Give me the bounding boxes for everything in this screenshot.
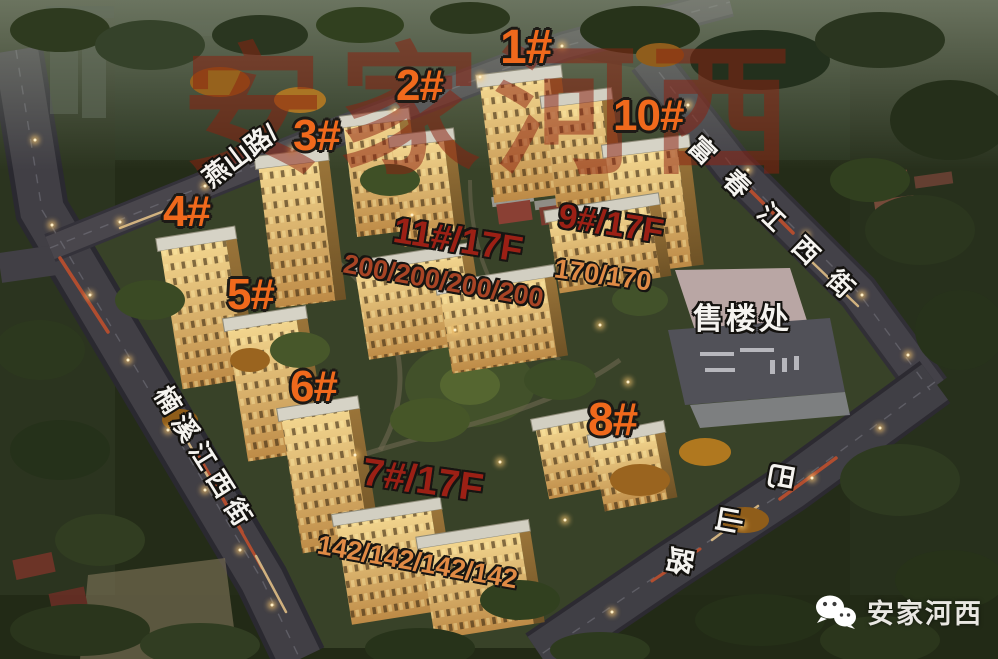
building-label-10: 10#	[613, 94, 683, 138]
building-label-4: 4#	[163, 190, 210, 234]
building-label-8: 8#	[588, 396, 637, 442]
street-label-bashan-road-char-1: 巴	[764, 460, 796, 492]
sales-office-label: 售楼处	[693, 305, 792, 335]
street-label-bashan-road-char-3: 路	[663, 545, 695, 577]
building-label-1: 1#	[500, 24, 551, 72]
building-label-5: 5#	[227, 273, 274, 317]
wechat-icon	[814, 594, 858, 630]
street-label-bashan-road-char-2: 山	[712, 504, 744, 536]
source-attribution: 安家河西	[814, 592, 983, 631]
building-label-2: 2#	[396, 64, 443, 108]
building-label-3: 3#	[293, 114, 340, 158]
building-label-6: 6#	[290, 365, 337, 409]
aerial-rendering: 安家河西 燕山路/ 富春江西街 楠溪江西街 巴 山 路 售楼处 1# 2# 3#…	[0, 0, 998, 659]
source-name: 安家河西	[867, 592, 983, 631]
